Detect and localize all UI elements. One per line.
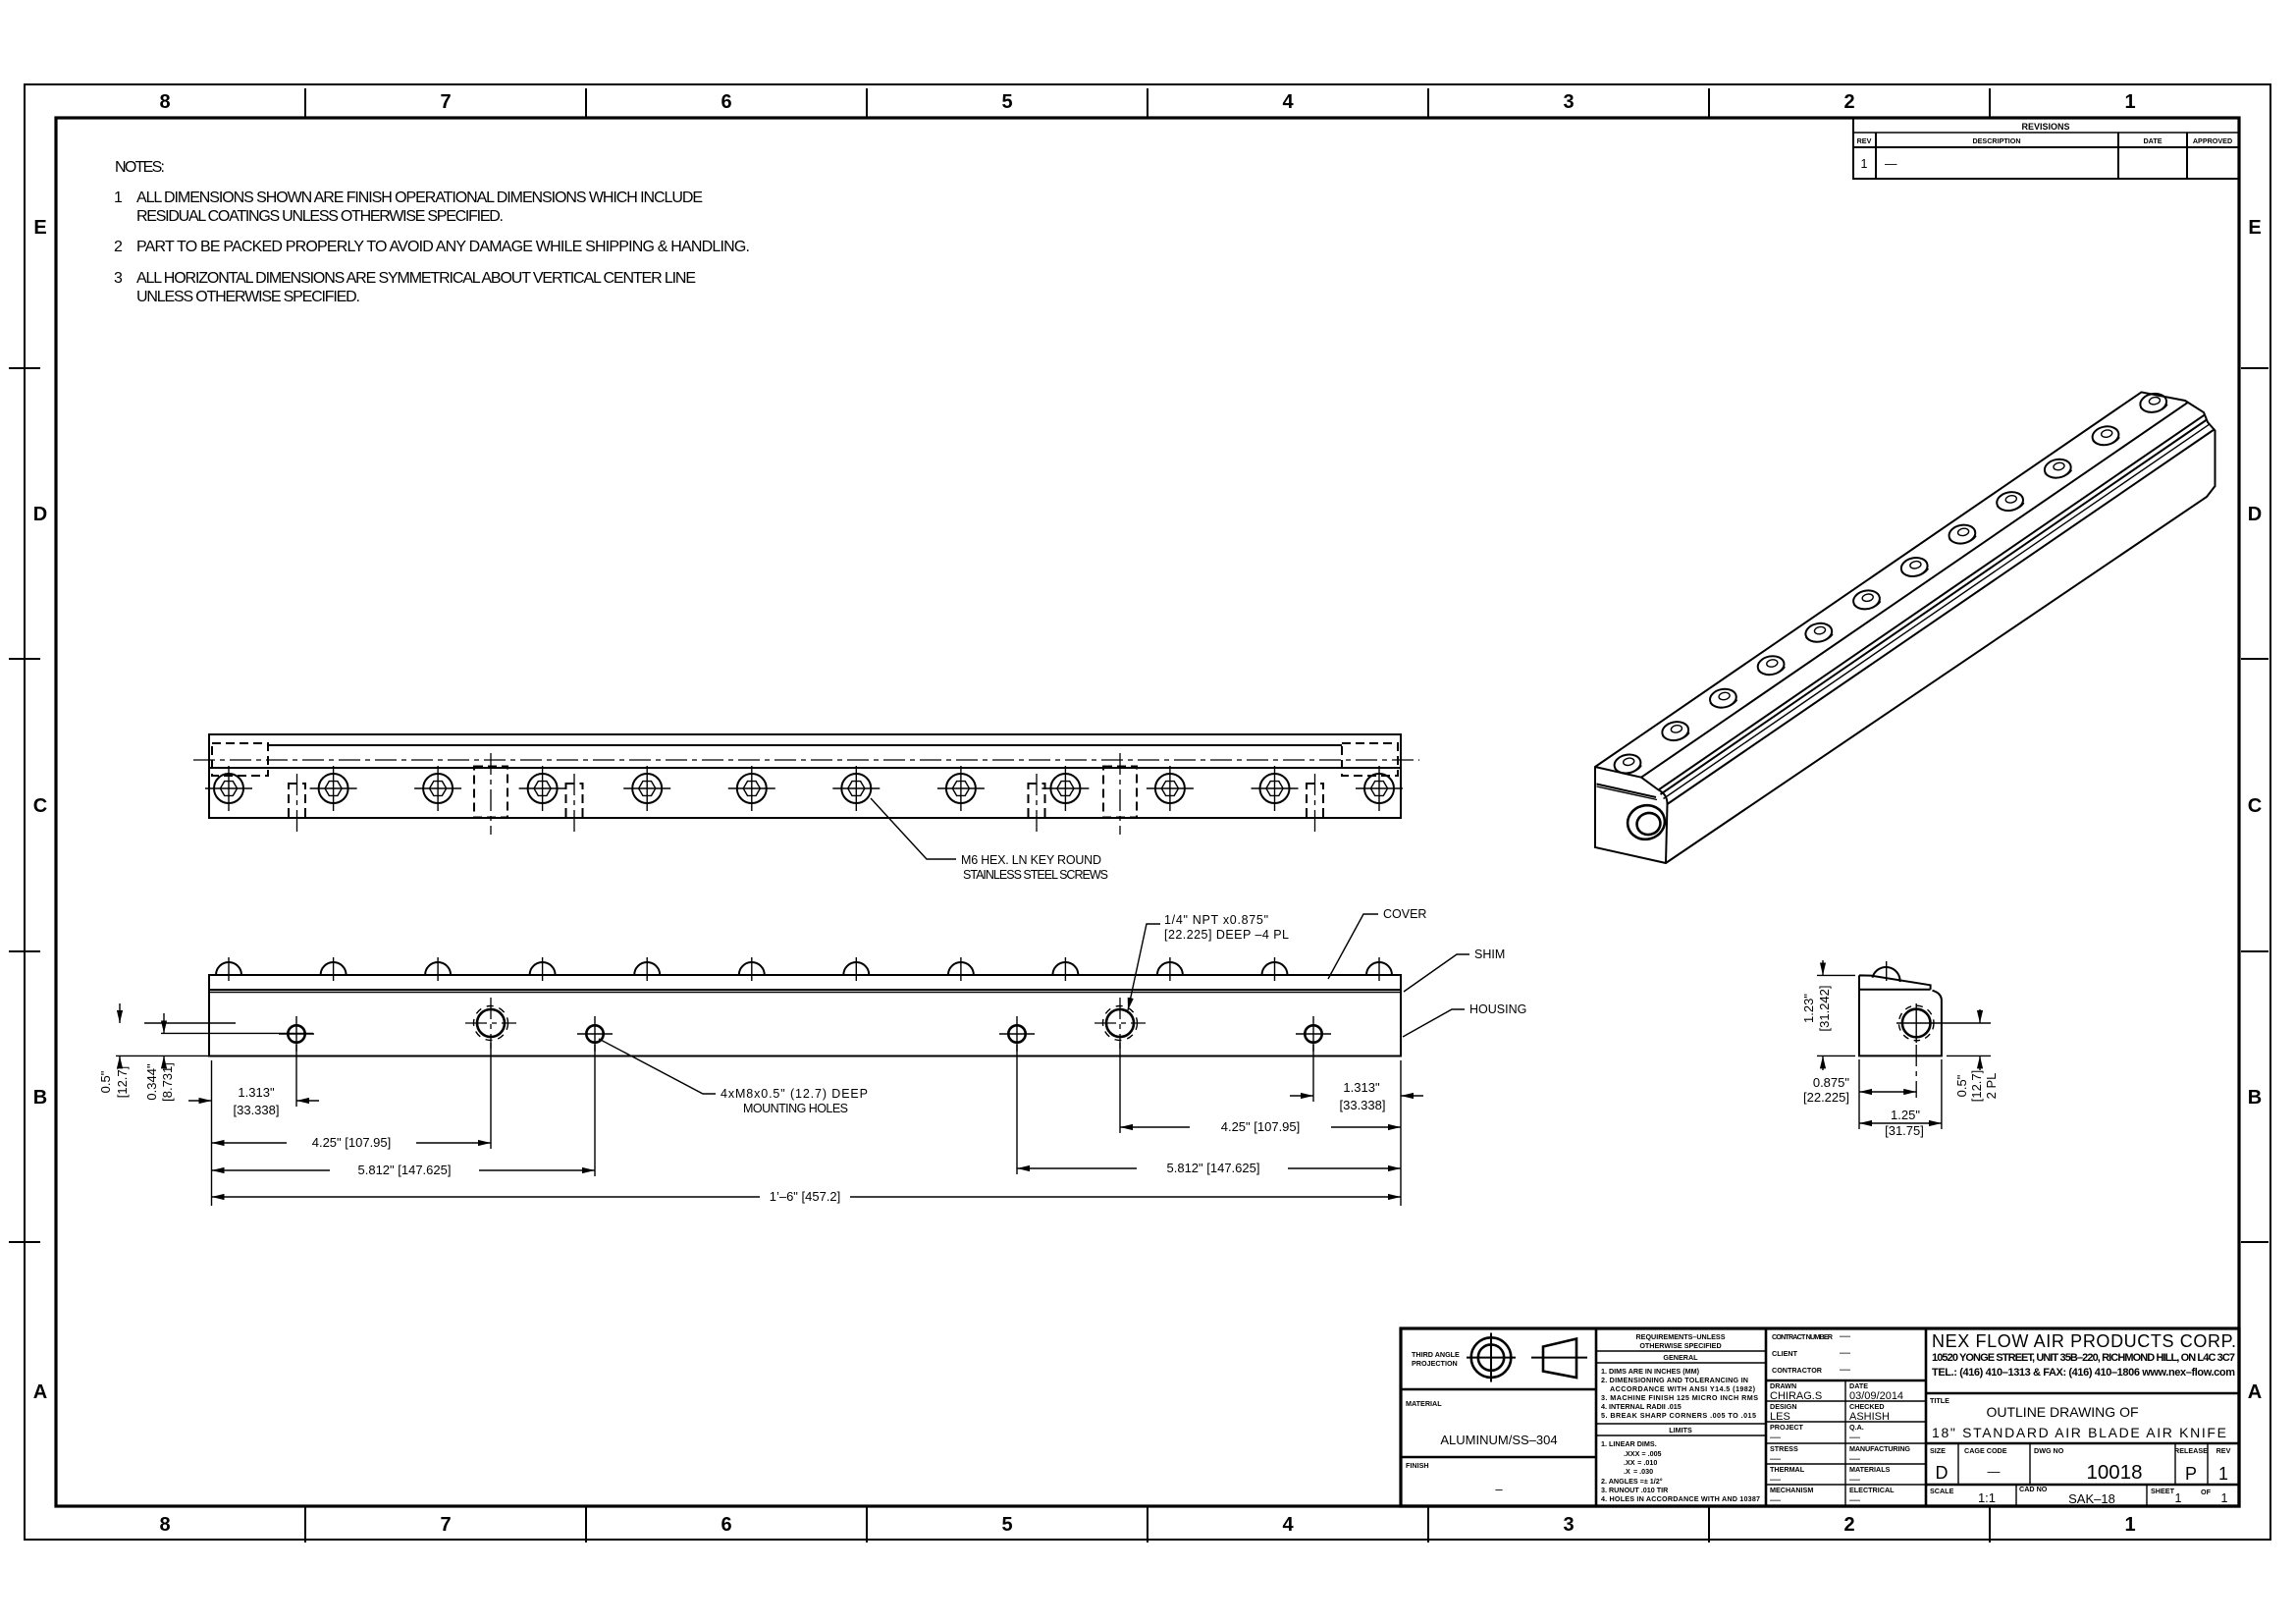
svg-text:ASHISH: ASHISH xyxy=(1849,1411,1890,1423)
svg-text:8: 8 xyxy=(159,91,170,113)
svg-text:1’–6" [457.2]: 1’–6" [457.2] xyxy=(770,1189,841,1204)
svg-text:.XXX = .005: .XXX = .005 xyxy=(1624,1449,1662,1458)
svg-text:5: 5 xyxy=(1001,1514,1012,1536)
svg-text:1:1: 1:1 xyxy=(1978,1490,1996,1505)
svg-text:—: — xyxy=(1849,1494,1860,1506)
svg-text:[12.7]: [12.7] xyxy=(115,1066,130,1099)
svg-text:4: 4 xyxy=(1282,1514,1294,1536)
svg-text:CHIRAG.S: CHIRAG.S xyxy=(1770,1390,1822,1402)
svg-text:HOUSING: HOUSING xyxy=(1469,1002,1526,1016)
svg-text:DATE: DATE xyxy=(2143,136,2162,145)
svg-text:SCALE: SCALE xyxy=(1930,1487,1954,1495)
svg-text:7: 7 xyxy=(440,91,451,113)
svg-text:DATE: DATE xyxy=(1849,1381,1868,1390)
svg-text:TEL.: (416) 410–1313 & FAX: (4: TEL.: (416) 410–1313 & FAX: (416) 410–18… xyxy=(1932,1367,2235,1379)
svg-text:1: 1 xyxy=(2124,1514,2135,1536)
svg-text:CONTRACT NUMBER: CONTRACT NUMBER xyxy=(1772,1332,1834,1341)
svg-text:MATERIAL: MATERIAL xyxy=(1406,1399,1442,1408)
svg-text:4. INTERNAL RADII .015: 4. INTERNAL RADII .015 xyxy=(1601,1402,1682,1411)
svg-text:[31.75]: [31.75] xyxy=(1885,1123,1924,1138)
svg-text:MECHANISM: MECHANISM xyxy=(1770,1486,1813,1494)
svg-text:CHECKED: CHECKED xyxy=(1849,1402,1885,1411)
svg-text:4xM8x0.5" (12.7) DEEP: 4xM8x0.5" (12.7) DEEP xyxy=(721,1087,868,1101)
svg-text:1.25": 1.25" xyxy=(1891,1108,1920,1122)
svg-text:B: B xyxy=(2248,1087,2262,1109)
svg-text:OF: OF xyxy=(2201,1488,2212,1496)
svg-text:C: C xyxy=(33,795,47,817)
svg-text:C: C xyxy=(2248,795,2262,817)
svg-text:1. DIMS ARE IN INCHES (MM): 1. DIMS ARE IN INCHES (MM) xyxy=(1601,1367,1700,1376)
svg-text:4: 4 xyxy=(1282,91,1294,113)
svg-text:NEX FLOW AIR PRODUCTS CORP.: NEX FLOW AIR PRODUCTS CORP. xyxy=(1932,1331,2236,1351)
svg-text:PROJECTION: PROJECTION xyxy=(1412,1359,1458,1368)
svg-text:[22.225]: [22.225] xyxy=(1803,1090,1849,1105)
svg-text:[33.338]: [33.338] xyxy=(1340,1098,1386,1112)
svg-text:REV: REV xyxy=(2216,1446,2231,1455)
svg-text:D: D xyxy=(2248,504,2262,525)
svg-text:.X = .030: .X = .030 xyxy=(1624,1467,1653,1476)
svg-text:RELEASE: RELEASE xyxy=(2174,1446,2208,1455)
svg-text:OUTLINE DRAWING OF: OUTLINE DRAWING OF xyxy=(1986,1404,2138,1420)
svg-text:REQUIREMENTS–UNLESS: REQUIREMENTS–UNLESS xyxy=(1635,1332,1725,1341)
svg-text:THIRD ANGLE: THIRD ANGLE xyxy=(1412,1350,1460,1359)
svg-text:[33.338]: [33.338] xyxy=(234,1103,280,1117)
svg-text:5.812" [147.625]: 5.812" [147.625] xyxy=(1167,1161,1260,1175)
svg-text:2. ANGLES =± 1/2°: 2. ANGLES =± 1/2° xyxy=(1601,1477,1663,1486)
svg-text:CAGE CODE: CAGE CODE xyxy=(1964,1446,2007,1455)
svg-text:—: — xyxy=(1770,1453,1781,1465)
svg-text:MATERIALS: MATERIALS xyxy=(1849,1465,1891,1474)
svg-text:3: 3 xyxy=(1563,91,1574,113)
svg-text:RESIDUAL COATINGS UNLESS OTHER: RESIDUAL COATINGS UNLESS OTHERWISE SPECI… xyxy=(136,208,504,225)
svg-text:DRAWN: DRAWN xyxy=(1770,1381,1796,1390)
svg-text:0.5": 0.5" xyxy=(98,1070,113,1093)
svg-text:.XX = .010: .XX = .010 xyxy=(1624,1458,1657,1467)
svg-text:MOUNTING HOLES: MOUNTING HOLES xyxy=(743,1102,848,1115)
svg-text:ALUMINUM/SS–304: ALUMINUM/SS–304 xyxy=(1440,1433,1557,1447)
svg-text:THERMAL: THERMAL xyxy=(1770,1465,1805,1474)
svg-text:—: — xyxy=(1849,1474,1860,1486)
svg-text:[8.731]: [8.731] xyxy=(160,1062,175,1102)
svg-text:—: — xyxy=(1849,1453,1860,1465)
svg-text:SHIM: SHIM xyxy=(1474,947,1505,961)
svg-text:—: — xyxy=(1770,1432,1781,1443)
svg-text:7: 7 xyxy=(440,1514,451,1536)
svg-text:1. LINEAR DIMS.: 1. LINEAR DIMS. xyxy=(1601,1439,1657,1448)
svg-text:4.25" [107.95]: 4.25" [107.95] xyxy=(1221,1119,1301,1134)
svg-text:2: 2 xyxy=(1843,91,1854,113)
svg-text:2 PL: 2 PL xyxy=(1984,1073,1999,1100)
svg-text:CONTRACTOR: CONTRACTOR xyxy=(1772,1366,1823,1375)
svg-text:CLIENT: CLIENT xyxy=(1772,1349,1798,1358)
svg-text:—: — xyxy=(1988,1464,2001,1479)
svg-text:[31.242]: [31.242] xyxy=(1817,986,1832,1032)
svg-text:1.23": 1.23" xyxy=(1801,994,1816,1023)
svg-text:2. DIMENSIONING AND TOLERANCIN: 2. DIMENSIONING AND TOLERANCING IN xyxy=(1601,1376,1748,1384)
svg-text:FINISH: FINISH xyxy=(1406,1461,1429,1470)
svg-text:A: A xyxy=(2248,1381,2262,1403)
svg-text:1/4" NPT x0.875": 1/4" NPT x0.875" xyxy=(1164,913,1268,927)
svg-text:1.313": 1.313" xyxy=(1343,1080,1380,1095)
svg-text:0.875": 0.875" xyxy=(1813,1075,1850,1090)
svg-text:REV: REV xyxy=(1857,136,1872,145)
svg-text:1: 1 xyxy=(2124,91,2135,113)
svg-text:DESIGN: DESIGN xyxy=(1770,1402,1797,1411)
svg-text:SHEET: SHEET xyxy=(2151,1487,2175,1495)
svg-text:03/09/2014: 03/09/2014 xyxy=(1849,1390,1903,1402)
svg-text:APPROVED: APPROVED xyxy=(2193,136,2232,145)
svg-text:5.812" [147.625]: 5.812" [147.625] xyxy=(358,1163,452,1177)
svg-text:LES: LES xyxy=(1770,1411,1790,1423)
svg-text:OTHERWISE SPECIFIED: OTHERWISE SPECIFIED xyxy=(1639,1341,1721,1350)
svg-text:3: 3 xyxy=(1563,1514,1574,1536)
svg-text:Q.A.: Q.A. xyxy=(1849,1423,1864,1432)
svg-text:[12.7]: [12.7] xyxy=(1969,1070,1984,1103)
svg-text:NOTES:: NOTES: xyxy=(115,159,165,176)
svg-text:[22.225] DEEP –4 PL: [22.225] DEEP –4 PL xyxy=(1164,928,1289,942)
svg-text:4. HOLES IN ACCORDANCE WITH AN: 4. HOLES IN ACCORDANCE WITH AND 10387 xyxy=(1601,1494,1760,1503)
svg-text:E: E xyxy=(33,217,46,239)
svg-text:—: — xyxy=(1840,1347,1850,1359)
svg-text:10018: 10018 xyxy=(2086,1461,2142,1484)
svg-text:1: 1 xyxy=(2218,1464,2228,1484)
svg-text:4.25" [107.95]: 4.25" [107.95] xyxy=(312,1135,392,1150)
svg-text:2: 2 xyxy=(1843,1514,1854,1536)
svg-text:LIMITS: LIMITS xyxy=(1669,1426,1692,1435)
svg-text:3. MACHINE FINISH 125 MICRO IN: 3. MACHINE FINISH 125 MICRO INCH RMS xyxy=(1601,1393,1758,1402)
svg-text:18" STANDARD AIR BLADE AIR KNI: 18" STANDARD AIR BLADE AIR KNIFE xyxy=(1932,1425,2226,1440)
svg-text:REVISIONS: REVISIONS xyxy=(2021,122,2069,132)
svg-text:TITLE: TITLE xyxy=(1930,1396,1949,1405)
svg-text:B: B xyxy=(33,1087,47,1109)
svg-text:ALL HORIZONTAL DIMENSIONS ARE: ALL HORIZONTAL DIMENSIONS ARE SYMMETRICA… xyxy=(136,270,696,287)
svg-text:0.5": 0.5" xyxy=(1954,1074,1969,1097)
svg-text:6: 6 xyxy=(721,1514,731,1536)
svg-text:0.344": 0.344" xyxy=(144,1063,159,1101)
svg-text:—: — xyxy=(1840,1330,1850,1342)
svg-text:P: P xyxy=(2185,1464,2197,1484)
svg-text:1: 1 xyxy=(2221,1491,2228,1505)
svg-text:5. BREAK SHARP CORNERS .005 TO: 5. BREAK SHARP CORNERS .005 TO .015 xyxy=(1601,1411,1756,1420)
svg-text:—: — xyxy=(1885,157,1897,171)
svg-text:2: 2 xyxy=(114,239,123,255)
svg-text:—: — xyxy=(1770,1494,1781,1506)
svg-text:5: 5 xyxy=(1001,91,1012,113)
svg-text:SAK–18: SAK–18 xyxy=(2068,1491,2115,1506)
svg-text:CAD NO: CAD NO xyxy=(2019,1485,2048,1493)
svg-text:STRESS: STRESS xyxy=(1770,1444,1798,1453)
svg-text:PROJECT: PROJECT xyxy=(1770,1423,1804,1432)
svg-text:UNLESS OTHERWISE SPECIFIED.: UNLESS OTHERWISE SPECIFIED. xyxy=(136,289,360,305)
svg-text:DESCRIPTION: DESCRIPTION xyxy=(1972,136,2020,145)
svg-text:SIZE: SIZE xyxy=(1930,1446,1946,1455)
svg-text:—: — xyxy=(1849,1432,1860,1443)
svg-text:ELECTRICAL: ELECTRICAL xyxy=(1849,1486,1895,1494)
svg-text:—: — xyxy=(1770,1474,1781,1486)
svg-text:ALL DIMENSIONS SHOWN ARE FINIS: ALL DIMENSIONS SHOWN ARE FINISH OPERATIO… xyxy=(136,189,703,206)
svg-text:1: 1 xyxy=(1861,157,1868,171)
svg-text:8: 8 xyxy=(159,1514,170,1536)
svg-text:10520 YONGE STREET, UNIT 35B–2: 10520 YONGE STREET, UNIT 35B–220, RICHMO… xyxy=(1932,1352,2235,1364)
svg-text:1: 1 xyxy=(2175,1491,2182,1505)
svg-text:3: 3 xyxy=(114,270,123,287)
svg-text:A: A xyxy=(33,1381,47,1403)
svg-text:1.313": 1.313" xyxy=(238,1085,275,1100)
svg-text:E: E xyxy=(2248,217,2261,239)
svg-text:COVER: COVER xyxy=(1383,907,1426,921)
svg-text:DWG NO: DWG NO xyxy=(2034,1446,2064,1455)
svg-text:D: D xyxy=(1936,1463,1949,1483)
svg-text:PART TO BE PACKED PROPERLY TO: PART TO BE PACKED PROPERLY TO AVOID ANY … xyxy=(136,239,750,255)
svg-text:1: 1 xyxy=(114,189,123,206)
svg-text:M6 HEX. LN KEY ROUND: M6 HEX. LN KEY ROUND xyxy=(961,853,1101,867)
svg-text:MANUFACTURING: MANUFACTURING xyxy=(1849,1444,1910,1453)
svg-text:3. RUNOUT .010 TIR: 3. RUNOUT .010 TIR xyxy=(1601,1486,1669,1494)
svg-text:GENERAL: GENERAL xyxy=(1663,1353,1698,1362)
svg-text:–: – xyxy=(1495,1482,1503,1496)
svg-text:D: D xyxy=(33,504,47,525)
svg-text:—: — xyxy=(1840,1364,1850,1376)
svg-text:ACCORDANCE WITH ANSI Y14.5 (19: ACCORDANCE WITH ANSI Y14.5 (1982) xyxy=(1610,1384,1756,1393)
svg-text:STAINLESS STEEL SCREWS: STAINLESS STEEL SCREWS xyxy=(963,868,1108,882)
svg-text:6: 6 xyxy=(721,91,731,113)
